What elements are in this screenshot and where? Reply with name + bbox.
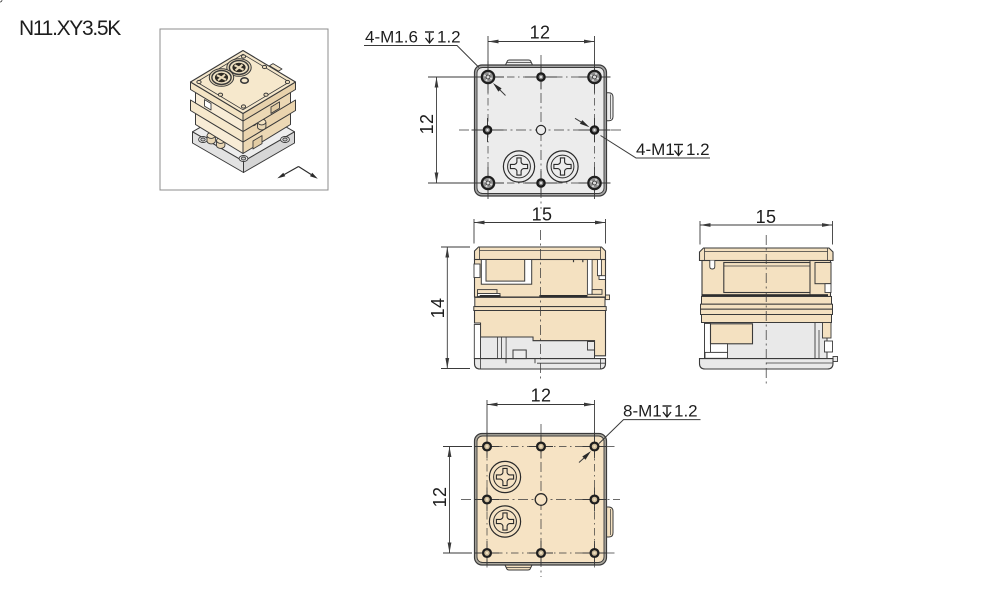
svg-text:1.2: 1.2 xyxy=(674,402,698,421)
svg-text:8-M1: 8-M1 xyxy=(623,402,662,421)
svg-text:15: 15 xyxy=(756,207,777,227)
svg-text:1.2: 1.2 xyxy=(437,28,461,47)
svg-text:12: 12 xyxy=(430,487,450,508)
svg-text:1.2: 1.2 xyxy=(686,140,710,159)
svg-text:12: 12 xyxy=(531,386,552,406)
svg-text:4-M1: 4-M1 xyxy=(636,140,675,159)
svg-text:14: 14 xyxy=(428,298,448,319)
svg-text:N11.XY3.5K: N11.XY3.5K xyxy=(19,17,121,40)
svg-text:4-M1.6: 4-M1.6 xyxy=(365,28,418,47)
svg-text:15: 15 xyxy=(532,205,553,225)
svg-text:12: 12 xyxy=(530,23,551,43)
svg-text:12: 12 xyxy=(417,114,437,135)
